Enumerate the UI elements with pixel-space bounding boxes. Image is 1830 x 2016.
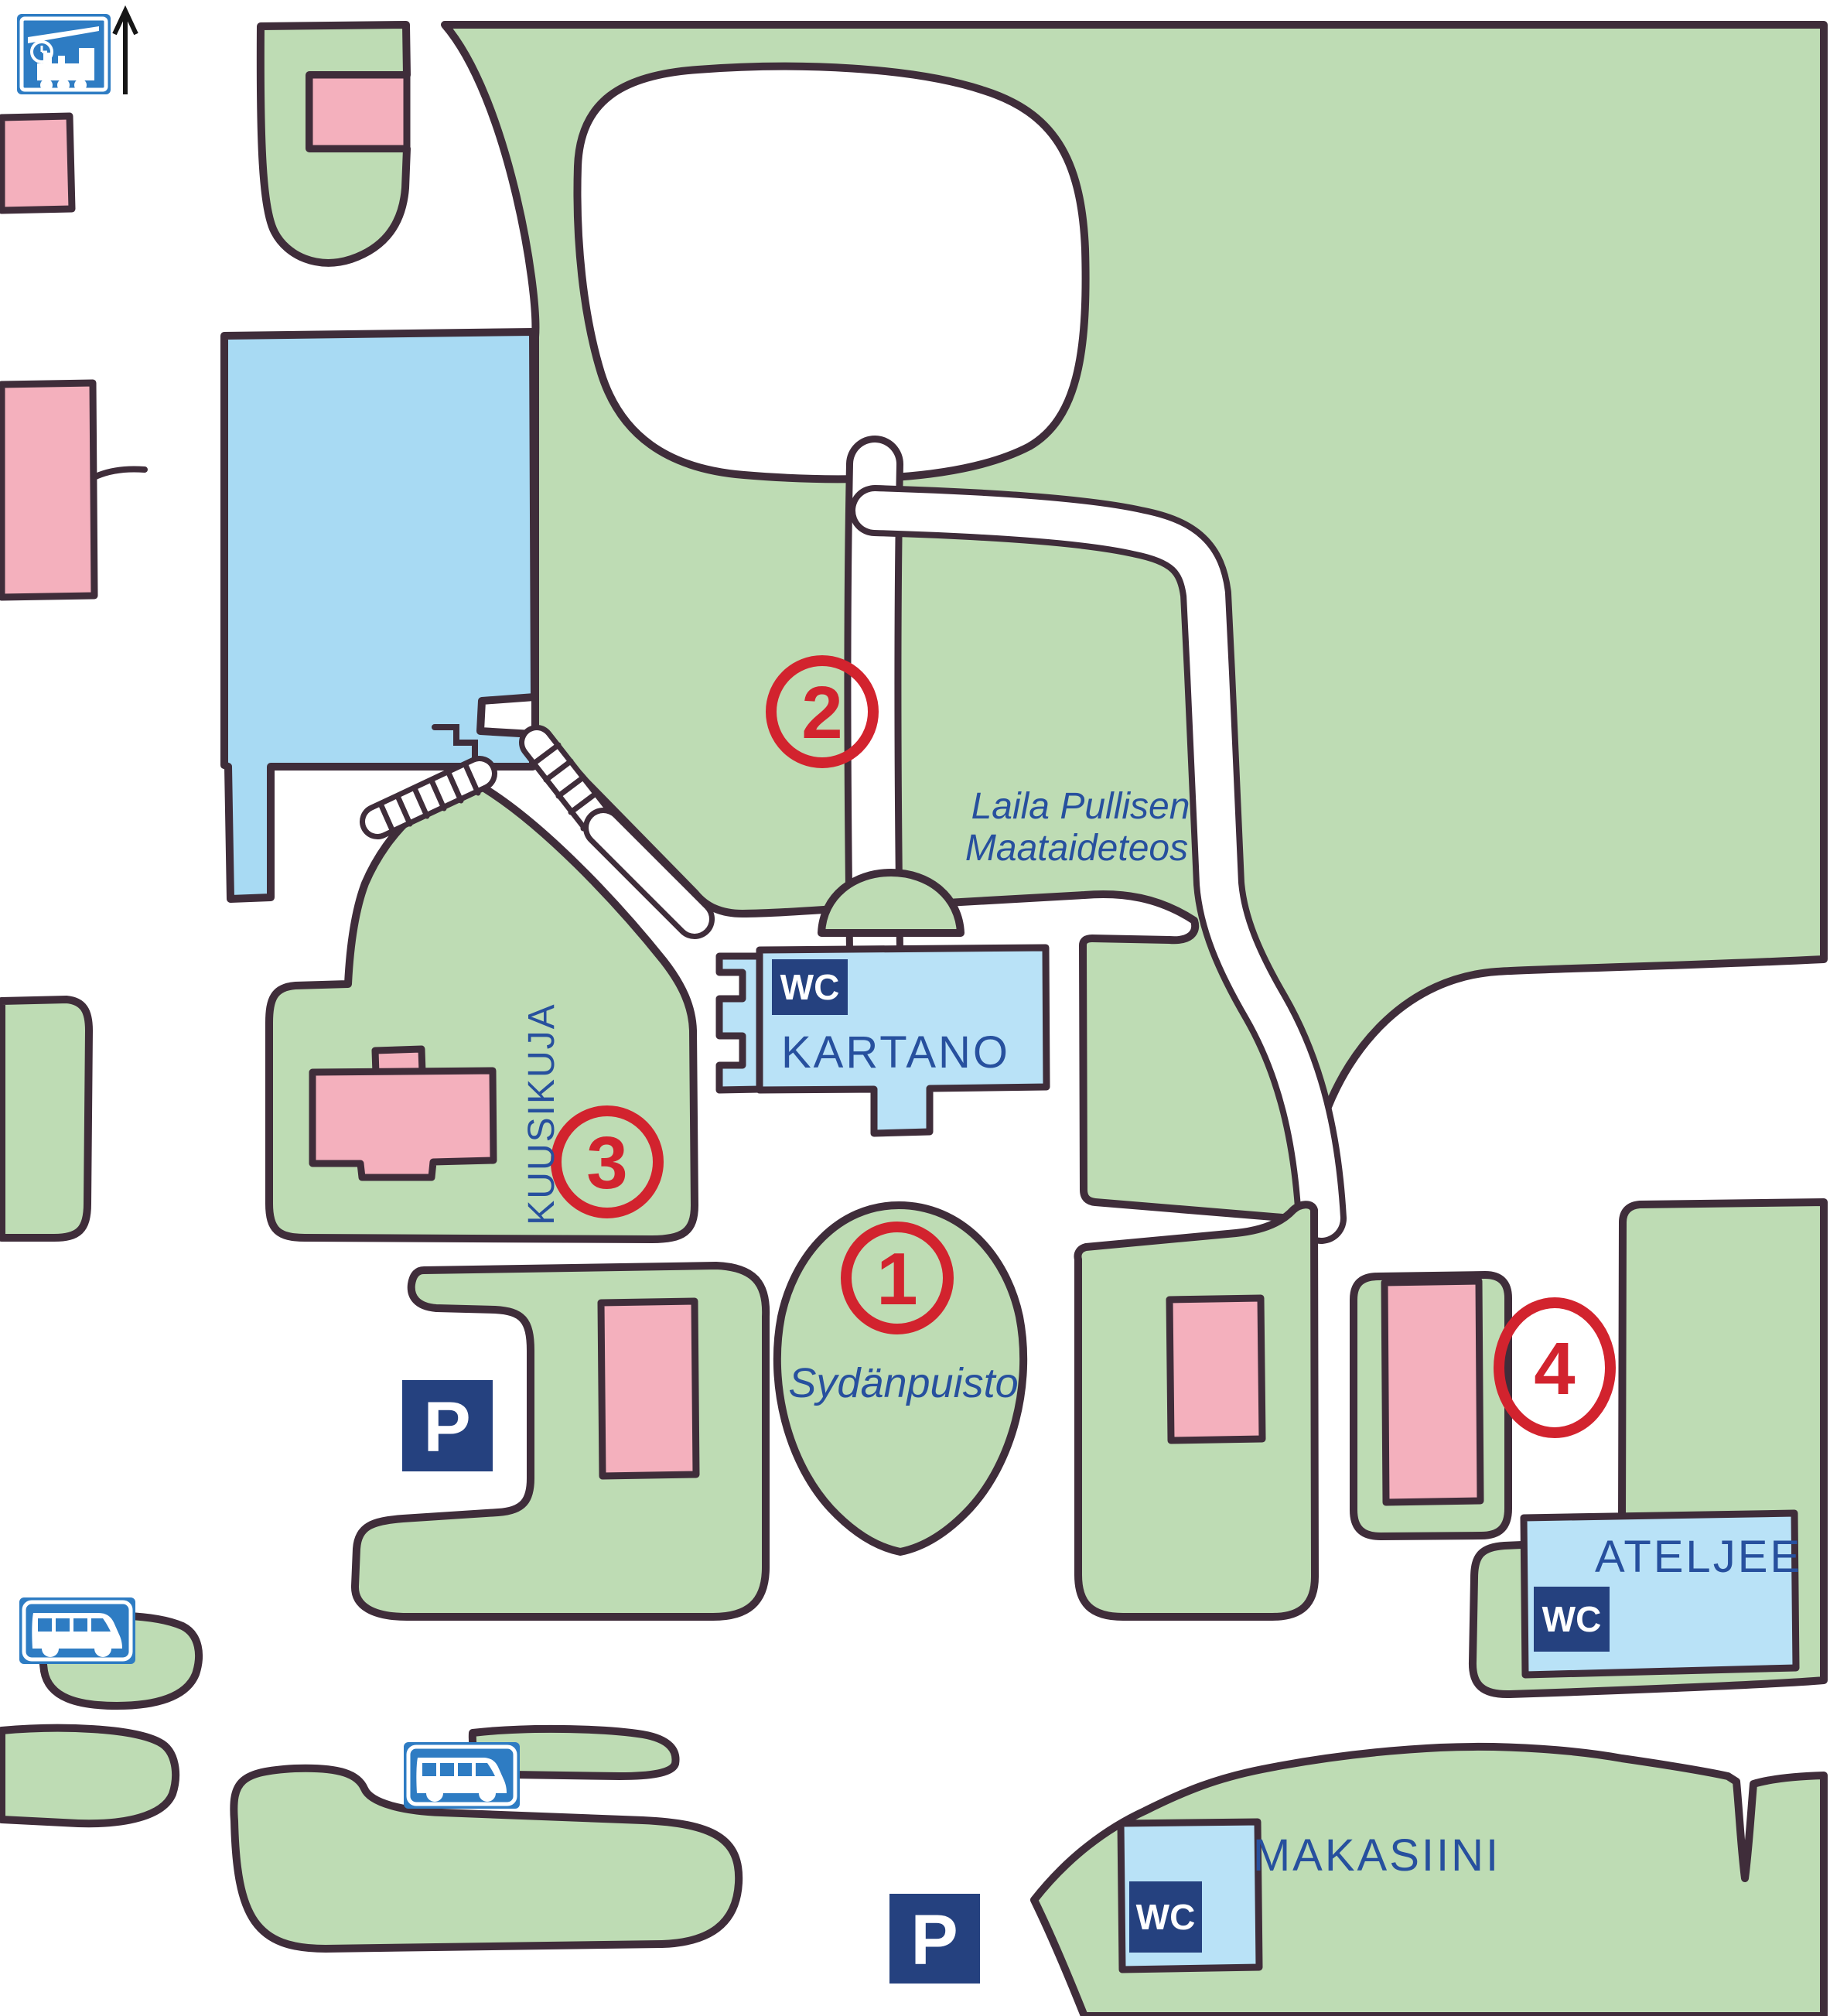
bus-stop-sign-icon-west <box>19 1597 135 1664</box>
land-art-label-line2: Maataideteos <box>965 828 1188 869</box>
marker-2-number: 2 <box>801 671 842 754</box>
kartano-label: KARTANO <box>781 1027 1010 1078</box>
marker-4-number: 4 <box>1534 1327 1575 1410</box>
wc-badge-makasiini: WC <box>1129 1881 1202 1953</box>
parking-sign-south: P <box>889 1894 980 1984</box>
wc-label: WC <box>1136 1897 1196 1937</box>
kuusikuja-label: KUUSIKUJA <box>521 1003 562 1225</box>
train-station-sign-icon <box>17 14 111 94</box>
makasiini-label: MAKASIINI <box>1253 1830 1501 1881</box>
parking-sign-west: P <box>402 1380 493 1471</box>
park-map: WC WC WC P P <box>0 0 1830 2016</box>
wc-badge-kartano: WC <box>772 959 848 1015</box>
marker-4: 4 <box>1499 1303 1610 1433</box>
building-pink-6 <box>1169 1298 1262 1440</box>
bus-stop-sign-icon-central <box>404 1742 520 1809</box>
park-islet-2 <box>2 1728 176 1823</box>
building-pink-4 <box>312 1071 493 1177</box>
marker-3-number: 3 <box>586 1122 627 1204</box>
sydanpuisto-label: Sydänpuisto <box>788 1360 1018 1406</box>
land-art-label-line1: Laila Pullisen <box>971 786 1190 827</box>
building-pink-7 <box>1384 1281 1480 1502</box>
parking-label: P <box>423 1388 470 1467</box>
wc-badge-ateljee: WC <box>1534 1587 1610 1652</box>
building-pink-2 <box>309 75 407 149</box>
wc-label: WC <box>1542 1599 1602 1639</box>
kartano-annex <box>719 956 760 1090</box>
parking-label: P <box>910 1901 958 1980</box>
building-pink-1 <box>2 116 72 210</box>
north-arrow-icon <box>114 11 136 94</box>
wc-label: WC <box>780 967 840 1007</box>
park-strip-left-edge <box>2 999 89 1238</box>
building-pink-3 <box>2 383 94 597</box>
ateljee-label: ATELJEE <box>1595 1532 1802 1582</box>
building-pink-5 <box>601 1301 696 1476</box>
marker-1-number: 1 <box>876 1238 917 1321</box>
map-canvas: WC WC WC P P <box>0 0 1830 2016</box>
